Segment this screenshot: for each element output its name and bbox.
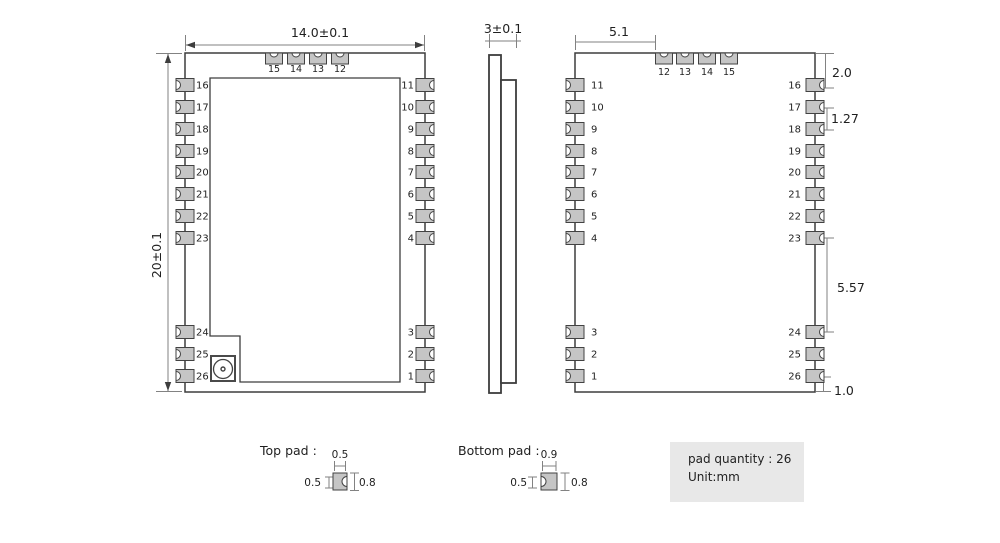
back-pad-6-notch [566, 190, 571, 199]
back-pad-21-notch [820, 190, 825, 199]
front-pad-label-19: 19 [196, 147, 209, 158]
back-pad-26-notch [820, 372, 825, 381]
back-pad-label-18: 18 [788, 125, 801, 136]
front-pad-1-notch [430, 372, 435, 381]
front-pad-label-3: 3 [408, 328, 414, 339]
back-pad-4-notch [566, 234, 571, 243]
front-pad-label-5: 5 [408, 212, 414, 223]
back-edge-bottom-dim-label: 1.0 [834, 383, 854, 398]
back-pad-label-2: 2 [591, 350, 597, 361]
front-pad-label-16: 16 [196, 81, 209, 92]
side-pcb-outline [489, 55, 501, 393]
front-pad-4-notch [430, 234, 435, 243]
front-pad-label-1: 1 [408, 372, 414, 383]
front-pad-label-12: 12 [334, 64, 346, 75]
back-pad-3-notch [566, 328, 571, 337]
back-pad-24-notch [820, 328, 825, 337]
back-pad-label-14: 14 [701, 67, 713, 78]
top-pad-detail-caption: Top pad : [259, 443, 317, 458]
front-pad-7-notch [430, 168, 435, 177]
front-pad-label-26: 26 [196, 372, 209, 383]
top-pad-length-dim-label: 0.8 [359, 477, 376, 489]
back-pad-label-24: 24 [788, 328, 801, 339]
back-pad-label-15: 15 [723, 67, 735, 78]
front-pad-24-notch [176, 328, 181, 337]
back-pad-12-notch [660, 53, 668, 57]
info-box-unit: Unit:mm [688, 470, 740, 484]
front-pad-label-10: 10 [401, 103, 414, 114]
front-pad-11-notch [430, 81, 435, 90]
back-pad-label-26: 26 [788, 372, 801, 383]
dim-arrowhead [186, 42, 195, 48]
front-pad-label-23: 23 [196, 234, 209, 245]
back-pad-label-3: 3 [591, 328, 597, 339]
front-pad-label-17: 17 [196, 103, 209, 114]
front-pad-19-notch [176, 147, 181, 156]
back-pad-label-4: 4 [591, 234, 597, 245]
outlines-layer [185, 53, 815, 393]
front-pad-5-notch [430, 212, 435, 221]
back-pad-label-1: 1 [591, 372, 597, 383]
back-pad-label-25: 25 [788, 350, 801, 361]
front-pad-label-22: 22 [196, 212, 209, 223]
front-pad-label-8: 8 [408, 147, 414, 158]
front-pad-15-notch [270, 53, 278, 57]
front-pad-20-notch [176, 168, 181, 177]
front-pad-16-notch [176, 81, 181, 90]
front-pad-13-notch [314, 53, 322, 57]
back-module-outline [575, 53, 815, 392]
back-pad-label-10: 10 [591, 103, 604, 114]
back-pad-25-notch [820, 350, 825, 359]
back-pad-label-21: 21 [788, 190, 801, 201]
side-shield-outline [501, 80, 516, 383]
front-pad-label-14: 14 [290, 64, 302, 75]
back-edge-top-dim-label: 2.0 [832, 65, 852, 80]
back-pad-label-12: 12 [658, 67, 670, 78]
back-pad-14-notch [703, 53, 711, 57]
front-pad-17-notch [176, 103, 181, 112]
bottom-pad-height-dim-label: 0.5 [510, 477, 527, 489]
front-pad-label-2: 2 [408, 350, 414, 361]
back-pad-17-notch [820, 103, 825, 112]
back-pad-5-notch [566, 212, 571, 221]
back-pad-label-6: 6 [591, 190, 597, 201]
back-pad-label-9: 9 [591, 125, 597, 136]
back-offset-dim-label: 5.1 [609, 24, 629, 39]
back-pad-1-notch [566, 372, 571, 381]
back-pad-label-16: 16 [788, 81, 801, 92]
dim-arrowhead [165, 382, 171, 391]
front-module-outline [185, 53, 425, 392]
front-pad-3-notch [430, 328, 435, 337]
front-pad-label-11: 11 [401, 81, 414, 92]
back-pad-label-11: 11 [591, 81, 604, 92]
back-pitch-dim-label: 1.27 [831, 111, 859, 126]
info-box-pad-quantity: pad quantity : 26 [688, 452, 791, 466]
dim-arrowhead [415, 42, 424, 48]
back-pad-label-13: 13 [679, 67, 691, 78]
back-pad-label-22: 22 [788, 212, 801, 223]
back-pad-label-7: 7 [591, 168, 597, 179]
front-pad-2-notch [430, 350, 435, 359]
front-height-dim-label: 20±0.1 [149, 232, 164, 278]
top-pad-width-dim-label: 0.5 [332, 449, 349, 461]
top-pad-height-dim-label: 0.5 [304, 477, 321, 489]
dim-arrowhead [165, 54, 171, 63]
front-pad-label-20: 20 [196, 168, 209, 179]
front-pad-21-notch [176, 190, 181, 199]
back-pad-label-5: 5 [591, 212, 597, 223]
back-pad-label-19: 19 [788, 147, 801, 158]
back-pad-19-notch [820, 147, 825, 156]
front-pad-label-25: 25 [196, 350, 209, 361]
front-pad-8-notch [430, 147, 435, 156]
front-pad-label-6: 6 [408, 190, 414, 201]
back-pad-23-notch [820, 234, 825, 243]
back-pad-label-17: 17 [788, 103, 801, 114]
back-pad-9-notch [566, 125, 571, 134]
front-width-dim-label: 14.0±0.1 [291, 25, 349, 40]
front-pad-label-4: 4 [408, 234, 414, 245]
back-gap-dim-label: 5.57 [837, 280, 865, 295]
back-pad-13-notch [681, 53, 689, 57]
front-pad-6-notch [430, 190, 435, 199]
front-pad-14-notch [292, 53, 300, 57]
front-pad-label-18: 18 [196, 125, 209, 136]
back-pad-2-notch [566, 350, 571, 359]
back-pad-15-notch [725, 53, 733, 57]
front-pad-25-notch [176, 350, 181, 359]
back-pad-16-notch [820, 81, 825, 90]
back-pad-10-notch [566, 103, 571, 112]
module-mechanical-drawing: 1617181920212223242526111098765432115141… [0, 0, 1000, 543]
bottom-pad-detail-caption: Bottom pad : [458, 443, 540, 458]
back-pad-8-notch [566, 147, 571, 156]
front-pad-10-notch [430, 103, 435, 112]
front-pad-label-13: 13 [312, 64, 324, 75]
bottom-pad-width-dim-label: 0.9 [541, 449, 558, 461]
front-pad-26-notch [176, 372, 181, 381]
back-pad-18-notch [820, 125, 825, 134]
front-pad-label-15: 15 [268, 64, 280, 75]
front-pad-12-notch [336, 53, 344, 57]
front-pad-label-7: 7 [408, 168, 414, 179]
back-pad-7-notch [566, 168, 571, 177]
front-pad-9-notch [430, 125, 435, 134]
back-pad-20-notch [820, 168, 825, 177]
antenna-connector-ring [214, 360, 233, 379]
bottom-pad-length-dim-label: 0.8 [571, 477, 588, 489]
front-pad-label-9: 9 [408, 125, 414, 136]
back-pad-label-23: 23 [788, 234, 801, 245]
back-pad-22-notch [820, 212, 825, 221]
back-pad-11-notch [566, 81, 571, 90]
back-pad-label-8: 8 [591, 147, 597, 158]
front-pad-22-notch [176, 212, 181, 221]
front-pad-label-24: 24 [196, 328, 209, 339]
front-pad-23-notch [176, 234, 181, 243]
front-pad-18-notch [176, 125, 181, 134]
front-pad-label-21: 21 [196, 190, 209, 201]
side-thickness-dim-label: 3±0.1 [484, 21, 522, 36]
back-pad-label-20: 20 [788, 168, 801, 179]
